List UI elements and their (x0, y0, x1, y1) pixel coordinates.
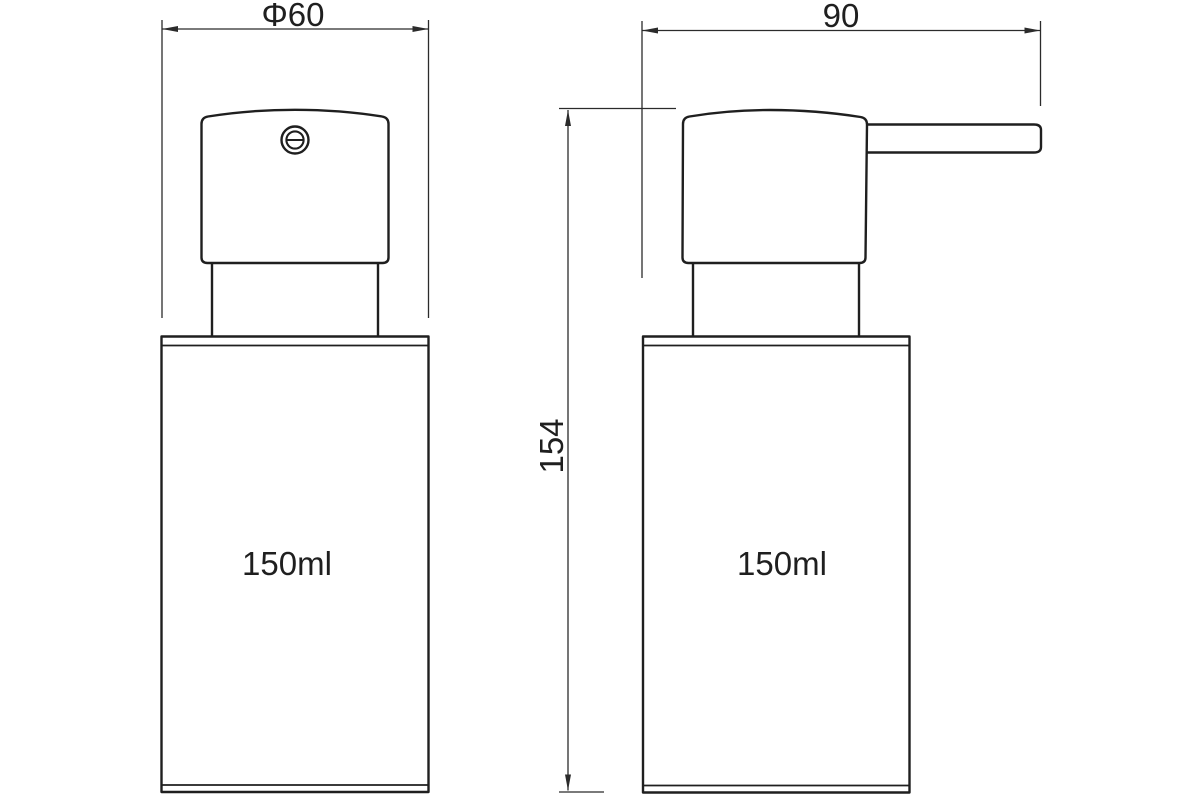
vent-symbol-icon (282, 127, 309, 154)
diameter-arrow-right (413, 26, 429, 32)
diameter-arrow-left (162, 26, 178, 32)
depth-arrow-right (1025, 28, 1041, 34)
height-arrow-top (565, 110, 571, 126)
height-dimension-label: 154 (533, 418, 570, 473)
side-spout-nozzle (867, 125, 1041, 153)
front-view: 150ml (162, 110, 429, 792)
diameter-dimension-label: Φ60 (261, 0, 324, 33)
side-volume-label: 150ml (737, 545, 827, 582)
front-volume-label: 150ml (242, 545, 332, 582)
front-pump-head (202, 110, 389, 263)
dimension-depth: 90 (642, 0, 1041, 278)
depth-dimension-label: 90 (823, 0, 860, 34)
depth-arrow-left (642, 28, 658, 34)
drawing-canvas: 150ml 150ml Φ60 (0, 0, 1200, 800)
dispenser-technical-drawing: 150ml 150ml Φ60 (0, 0, 1200, 800)
side-pump-head (683, 110, 868, 263)
dimension-height: 154 (533, 109, 676, 793)
height-arrow-bottom (565, 775, 571, 791)
side-view: 150ml (643, 110, 1041, 793)
